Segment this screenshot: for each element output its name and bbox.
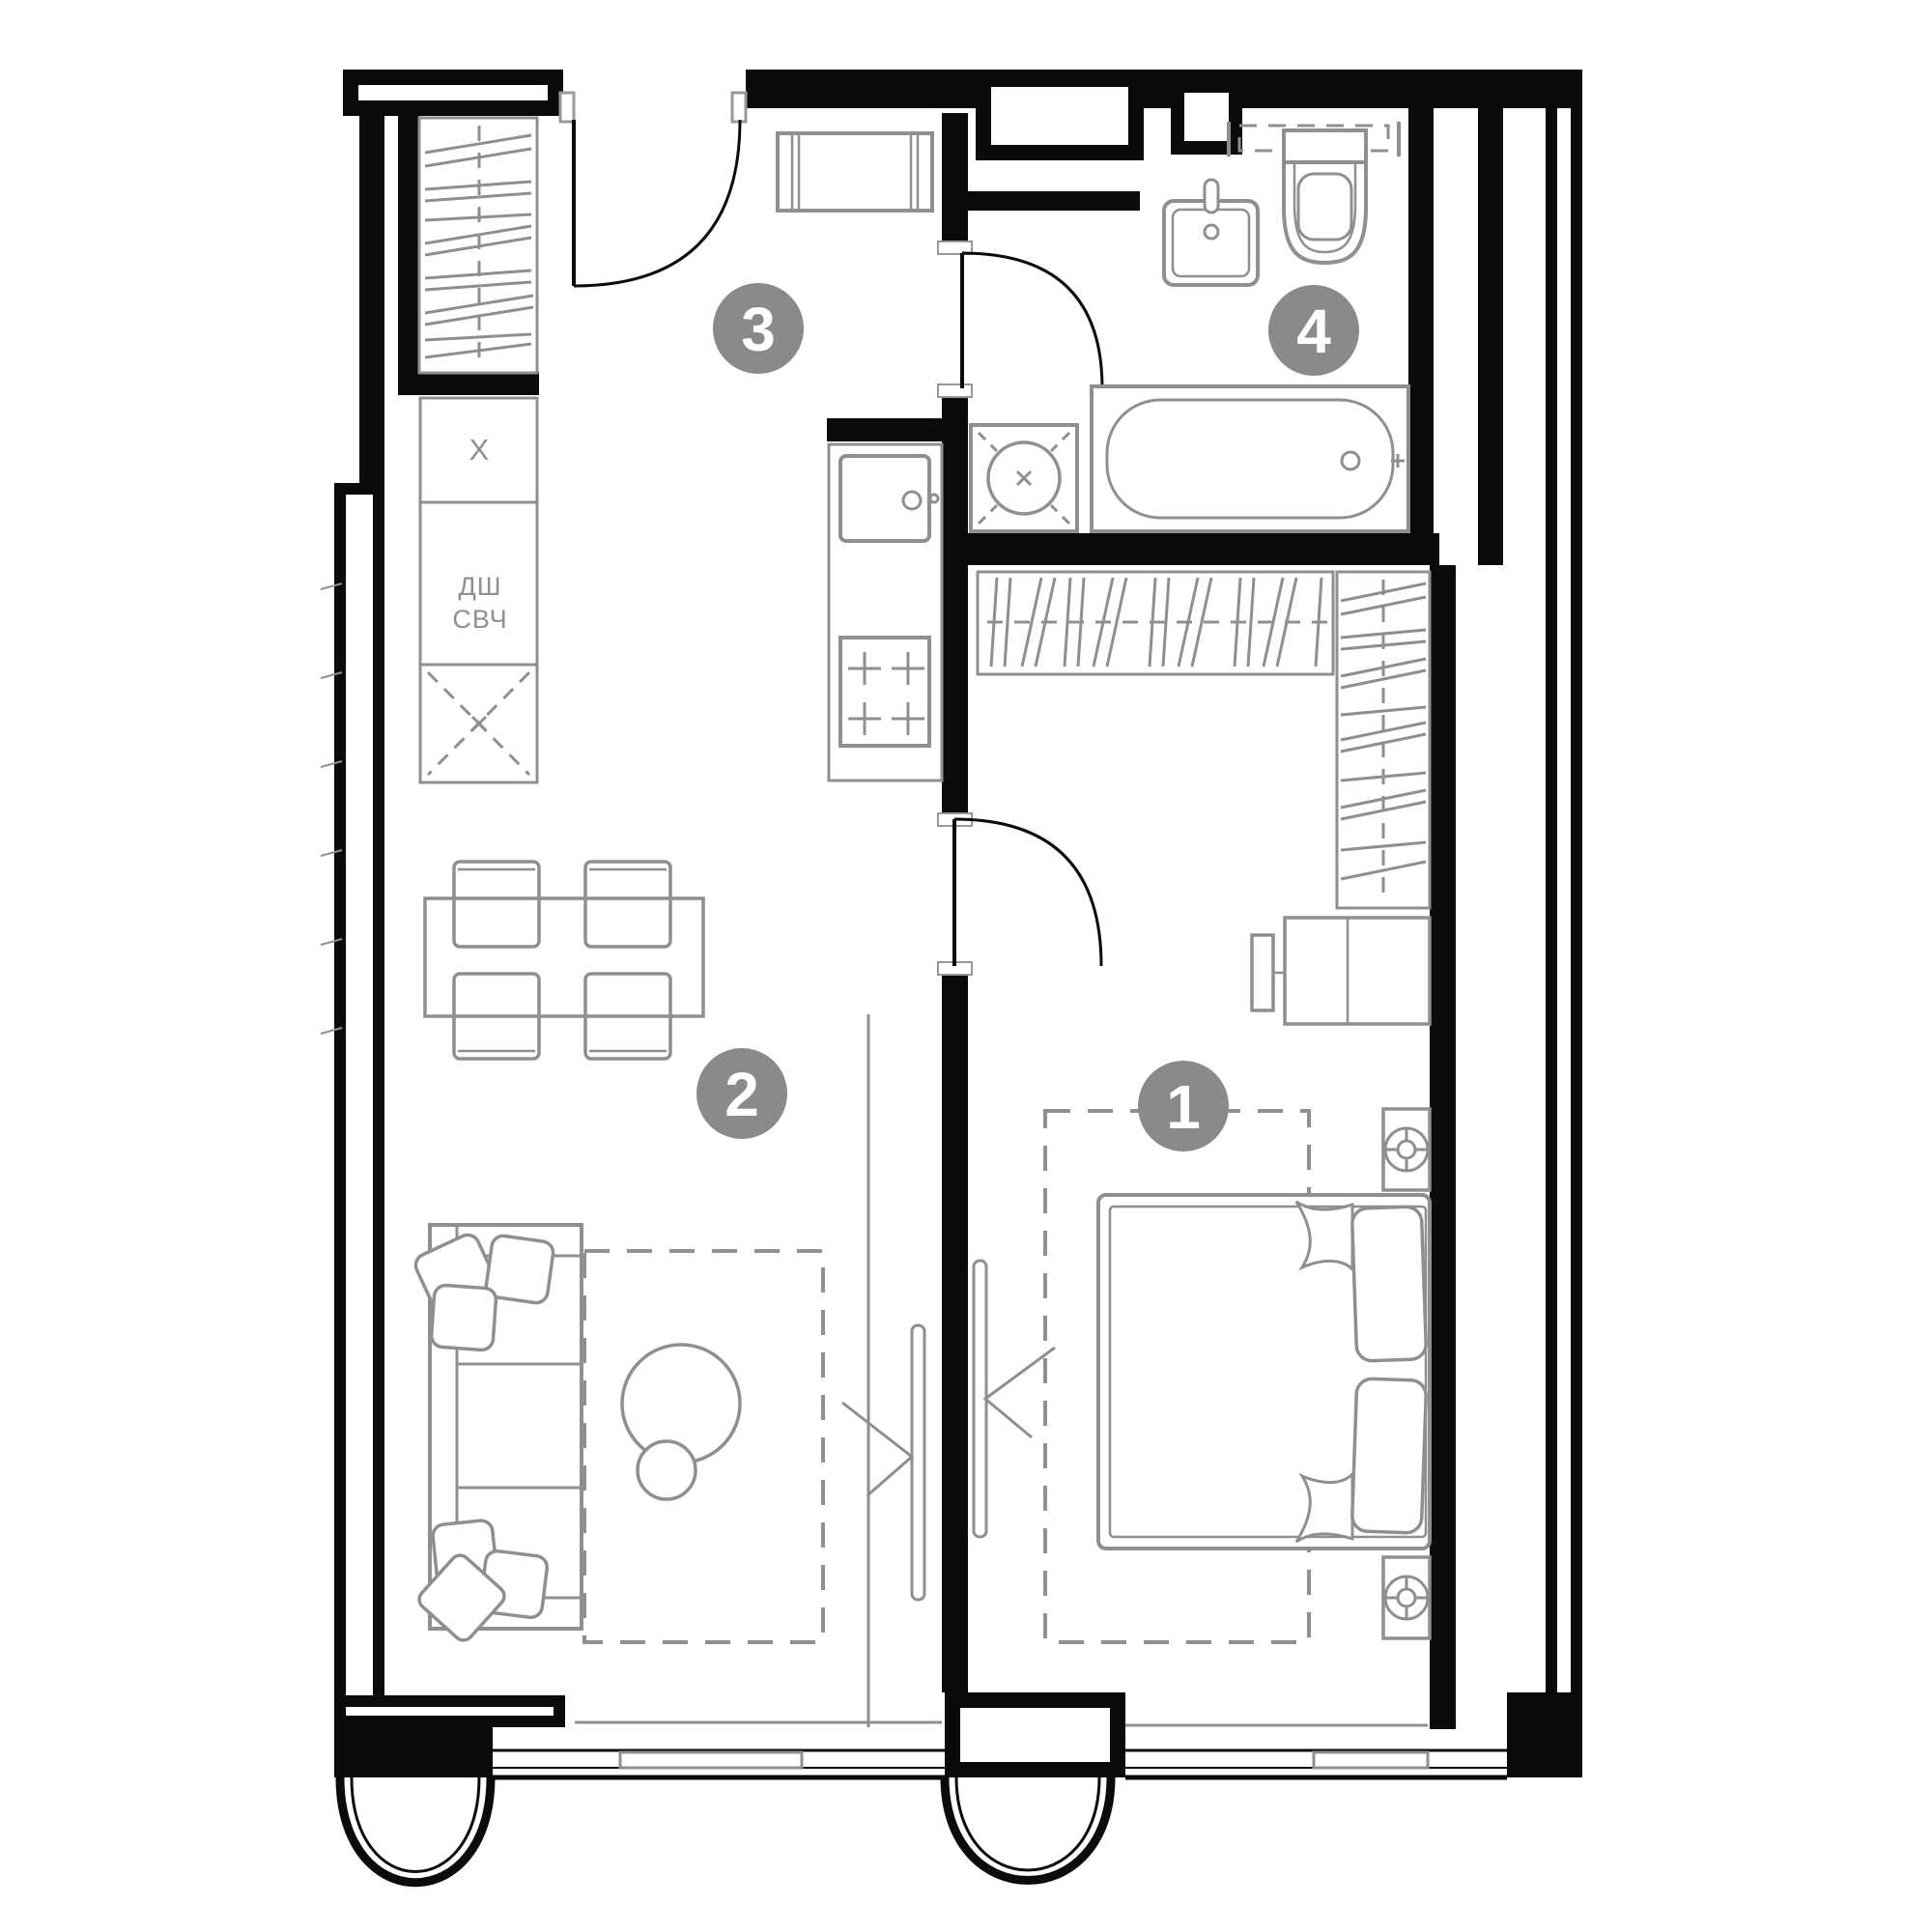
balcony-left (340, 1777, 491, 1883)
nightstand-bottom (1383, 1557, 1430, 1638)
room-3-number: 3 (741, 295, 776, 364)
room-badge-3: 3 (713, 283, 804, 374)
toilet-icon (1284, 130, 1366, 263)
tv-living-icon (842, 1325, 924, 1600)
washing-machine-icon (971, 425, 1077, 531)
bathroom-door (938, 241, 1102, 397)
sofa-pillow-icon (431, 1285, 497, 1350)
hall-bench (778, 133, 932, 211)
room-badge-4: 4 (1268, 285, 1359, 376)
dining-chair-icon (454, 862, 539, 947)
kitchen-sink-icon (840, 456, 938, 541)
kitchen-stove-icon (840, 638, 929, 746)
balcony-right (945, 1777, 1111, 1881)
nightstand-top (1383, 1109, 1430, 1190)
bed-icon (1098, 1195, 1430, 1548)
kitchen-hood-label: X (469, 433, 490, 467)
bathtub-icon (1092, 386, 1408, 531)
dining-set (425, 862, 703, 1059)
room-1-number: 1 (1166, 1072, 1201, 1142)
pillow-icon (1351, 1378, 1426, 1533)
dining-table-icon (425, 898, 703, 1016)
tv-bedroom-icon (974, 1261, 1055, 1537)
hall-wardrobe (419, 118, 537, 373)
kitchen-dishwasher-label: ДШ (458, 572, 501, 601)
bathroom-sink-icon (1164, 180, 1258, 285)
floor-plan-page: X ДШ СВЧ (0, 0, 1932, 1932)
sofa-icon (412, 1225, 582, 1644)
dining-chair-icon (585, 862, 670, 947)
bedroom-wardrobe (978, 572, 1430, 908)
entry-door (560, 93, 746, 286)
room-badge-2: 2 (696, 1048, 787, 1139)
bedroom-desk (1252, 918, 1430, 1024)
kitchen-microwave-label: СВЧ (452, 605, 507, 634)
kitchen-counter (829, 444, 942, 781)
room-2-number: 2 (724, 1060, 759, 1129)
pillow-icon (1351, 1207, 1426, 1361)
room-badge-1: 1 (1138, 1061, 1229, 1151)
desk-chair-icon (1252, 935, 1273, 1010)
floor-plan-canvas: X ДШ СВЧ (0, 0, 1932, 1932)
coffee-tables-icon (622, 1345, 740, 1499)
room-4-number: 4 (1296, 297, 1331, 366)
bedroom-door (938, 813, 1101, 975)
